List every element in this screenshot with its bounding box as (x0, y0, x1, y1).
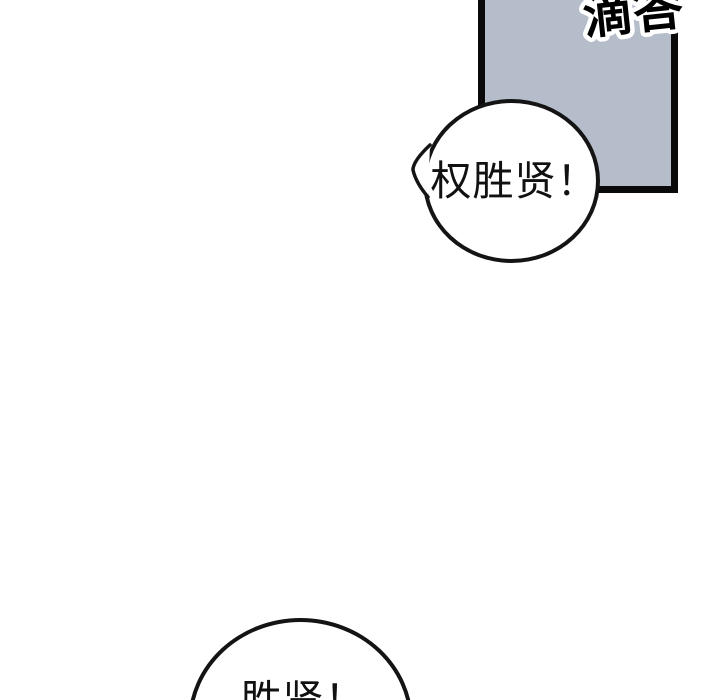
speech-bubble-upper: 权胜贤！ (423, 99, 600, 263)
speech-bubble-tail (406, 142, 438, 200)
sfx-lettering: 滴答 (553, 0, 718, 43)
speech-text-bottom: 胜贤！ (235, 680, 367, 700)
speech-bubble-bottom: 胜贤！ (188, 618, 413, 700)
comic-page: 滴答 权胜贤！ 胜贤！ (0, 0, 720, 700)
speech-text-upper: 权胜贤！ (425, 161, 599, 202)
sfx-text: 滴答 (580, 0, 687, 46)
